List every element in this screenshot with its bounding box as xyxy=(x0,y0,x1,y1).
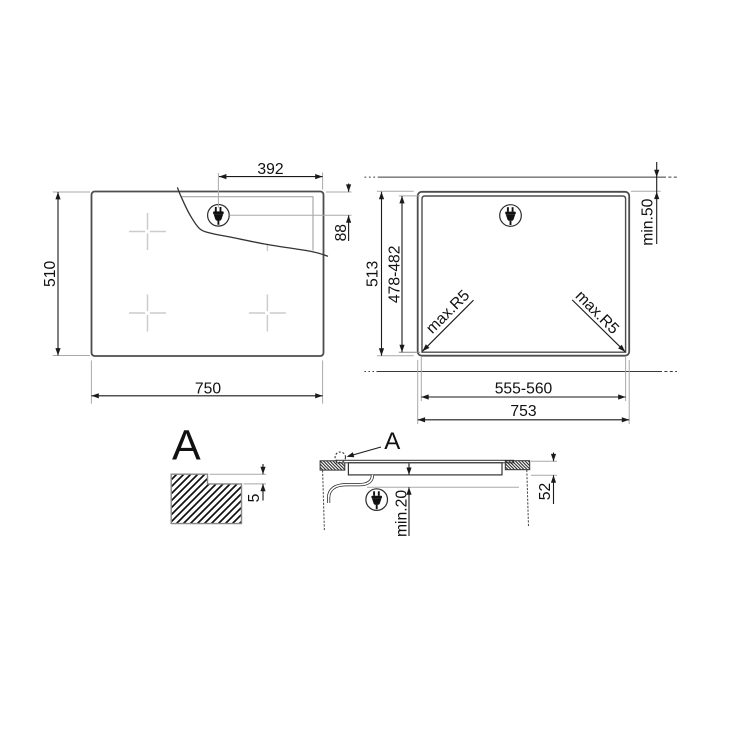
svg-text:753: 753 xyxy=(510,403,536,420)
svg-text:A: A xyxy=(172,422,201,470)
svg-text:750: 750 xyxy=(195,380,221,397)
svg-text:A: A xyxy=(384,428,400,455)
svg-text:min.20: min.20 xyxy=(393,490,410,537)
svg-text:510: 510 xyxy=(42,261,59,287)
svg-text:52: 52 xyxy=(537,483,554,500)
svg-text:513: 513 xyxy=(365,261,382,287)
svg-text:555-560: 555-560 xyxy=(495,380,553,397)
svg-text:88: 88 xyxy=(333,224,350,242)
svg-text:min.50: min.50 xyxy=(640,198,657,245)
svg-text:478-482: 478-482 xyxy=(387,246,404,304)
svg-text:392: 392 xyxy=(257,161,283,178)
svg-text:5: 5 xyxy=(246,493,263,502)
